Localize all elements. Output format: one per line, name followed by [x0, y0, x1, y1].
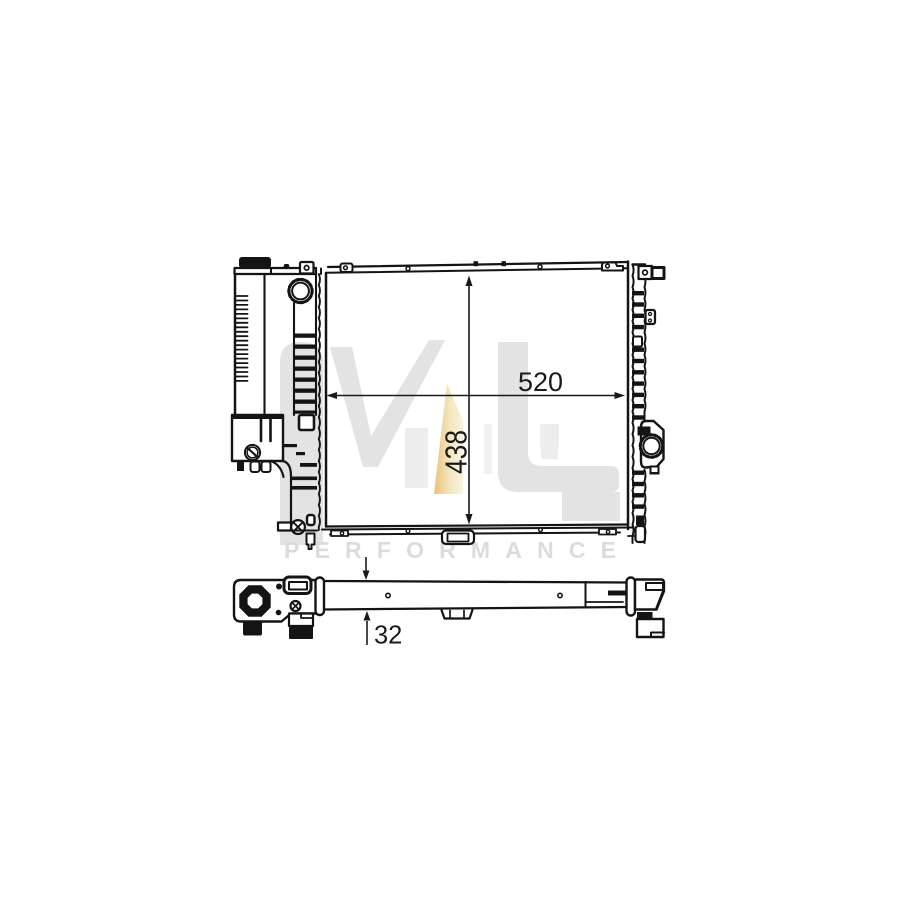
svg-text:438: 438 — [439, 430, 474, 474]
svg-text:32: 32 — [374, 622, 402, 650]
svg-text:520: 520 — [518, 367, 563, 397]
